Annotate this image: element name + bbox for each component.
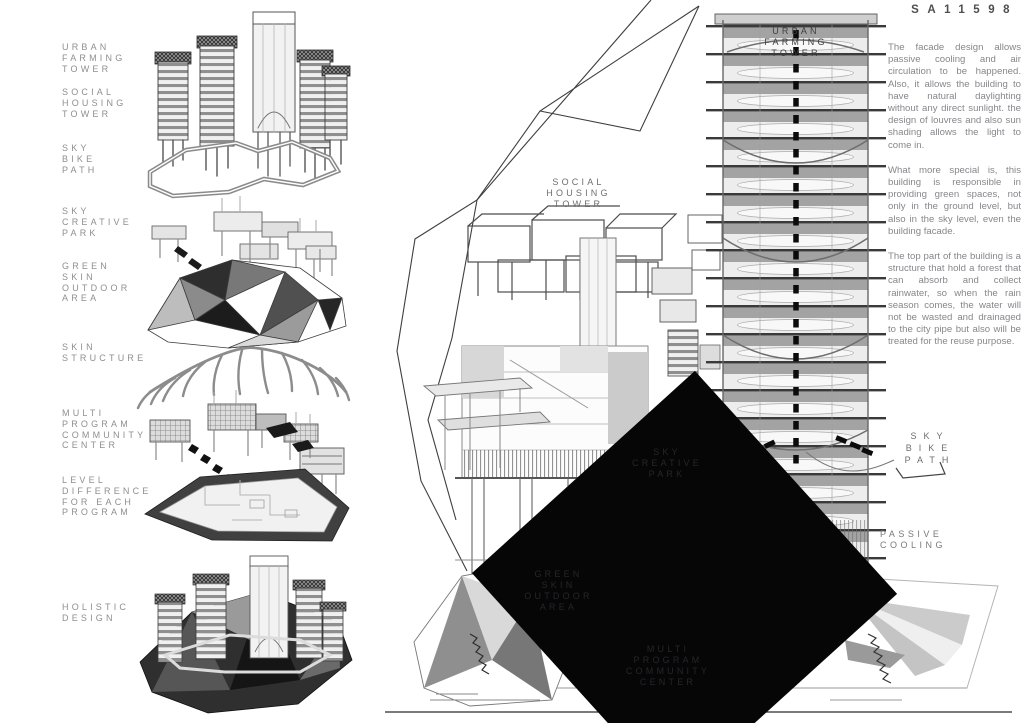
facade-paragraph: The facade design allows passive cooling… [888, 42, 1021, 152]
left-label-urban-farming-tower: URBAN FARMING TOWER [62, 42, 162, 74]
left-label-skin-structure: SKIN STRUCTURE [62, 342, 162, 364]
left-label-social-housing-tower: SOCIAL HOUSING TOWER [62, 87, 162, 119]
label-social-housing-tower: SOCIAL HOUSING TOWER [516, 177, 641, 210]
label-green-skin-outdoor-area: GREEN SKIN OUTDOOR AREA [506, 569, 611, 613]
left-label-sky-creative-park: SKY CREATIVE PARK [62, 206, 162, 238]
axon-bike-loop [150, 142, 338, 196]
left-label-sky-bike-path: SKY BIKE PATH [62, 143, 162, 175]
axon-holistic-design [140, 556, 352, 713]
left-label-level-difference: LEVEL DIFFERENCE FOR EACH PROGRAM [62, 475, 162, 518]
project-code: SA11598 [911, 4, 1018, 16]
label-sky-bike-path: SKY BIKE PATH [891, 430, 969, 466]
presentation-board: SA11598 URBAN FARMING TOWER SOCIAL HOUSI… [0, 0, 1024, 723]
label-multi-program-community-center: MULTI PROGRAM COMMUNITY CENTER [608, 644, 728, 688]
description-column: The facade design allows passive cooling… [888, 42, 1021, 362]
label-urban-farming-tower: URBAN FARMING TOWER [736, 26, 856, 59]
axon-skin-structure [138, 348, 349, 408]
left-label-green-skin-outdoor: GREEN SKIN OUTDOOR AREA [62, 261, 162, 304]
greenspace-paragraph: What more special is, this building is r… [888, 165, 1021, 238]
left-label-multi-program-center: MULTI PROGRAM COMMUNITY CENTER [62, 408, 162, 451]
rainwater-paragraph: The top part of the building is a struct… [888, 251, 1021, 349]
label-passive-cooling: PASSIVE COOLING [880, 529, 960, 551]
axon-green-skin [148, 260, 346, 348]
left-label-holistic-design: HOLISTIC DESIGN [62, 602, 162, 624]
axon-level-difference [145, 469, 349, 541]
label-sky-creative-park: SKY CREATIVE PARK [612, 447, 722, 480]
